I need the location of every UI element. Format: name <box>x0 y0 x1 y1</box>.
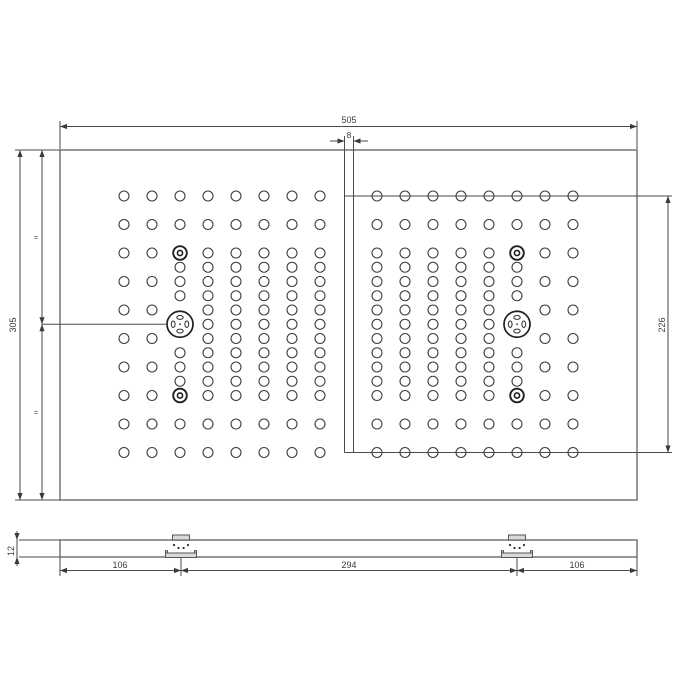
plate-outline <box>60 150 637 500</box>
bracket-post <box>502 551 504 553</box>
bracket-post <box>195 551 197 553</box>
dimension-arrow <box>39 493 44 500</box>
screw-dot <box>173 544 175 546</box>
section-outline <box>60 540 637 557</box>
dimension-arrow <box>39 150 44 157</box>
bracket-post <box>166 551 168 553</box>
top-view <box>60 136 637 500</box>
dim-bracket-spacing: 294 <box>341 560 356 570</box>
dim-overall-height: 305 <box>8 317 18 332</box>
dim-thickness: 12 <box>6 546 16 556</box>
dim-slot-width: 8 <box>347 130 352 140</box>
dimension-arrow <box>17 493 22 500</box>
dimension-arrow <box>665 446 670 453</box>
equal-mark-top: = <box>34 235 38 242</box>
screw-dot <box>183 547 185 549</box>
dimension-arrow <box>665 196 670 203</box>
dimension-arrow <box>14 557 19 564</box>
dimension-arrow <box>39 324 44 331</box>
dimension-arrow <box>517 568 524 573</box>
section-view <box>60 535 637 558</box>
dim-bracket-right-offset: 106 <box>569 560 584 570</box>
screw-dot <box>177 547 179 549</box>
dimension-arrow <box>60 124 67 129</box>
dimension-arrow <box>60 568 67 573</box>
center-nozzle <box>504 311 530 337</box>
dimension-arrow <box>14 533 19 540</box>
screw-dot <box>187 544 189 546</box>
dim-overall-width: 505 <box>341 115 356 125</box>
screw-dot <box>513 547 515 549</box>
drawing-canvas: 5058305==22612106294106 <box>0 0 700 700</box>
screw-dot <box>509 544 511 546</box>
center-nozzle <box>167 311 193 337</box>
screw-dot <box>523 544 525 546</box>
bracket-base <box>166 553 197 558</box>
dimension-arrow <box>338 138 345 143</box>
bracket-tab <box>509 535 526 540</box>
dimension-arrow <box>630 568 637 573</box>
dim-bracket-left-offset: 106 <box>112 560 127 570</box>
screw-dot <box>519 547 521 549</box>
dimension-arrow <box>630 124 637 129</box>
bracket-tab <box>173 535 190 540</box>
dimension-arrow <box>510 568 517 573</box>
equal-mark-bottom: = <box>34 410 38 417</box>
bracket-post <box>531 551 533 553</box>
bracket-base <box>502 553 533 558</box>
dimension-arrow <box>39 317 44 324</box>
dimension-arrow <box>354 138 361 143</box>
dimension-arrow <box>174 568 181 573</box>
dimension-arrow <box>17 150 22 157</box>
dim-hole-span: 226 <box>657 317 667 332</box>
technical-drawing: 5058305==22612106294106 <box>0 0 700 700</box>
dimension-arrow <box>181 568 188 573</box>
